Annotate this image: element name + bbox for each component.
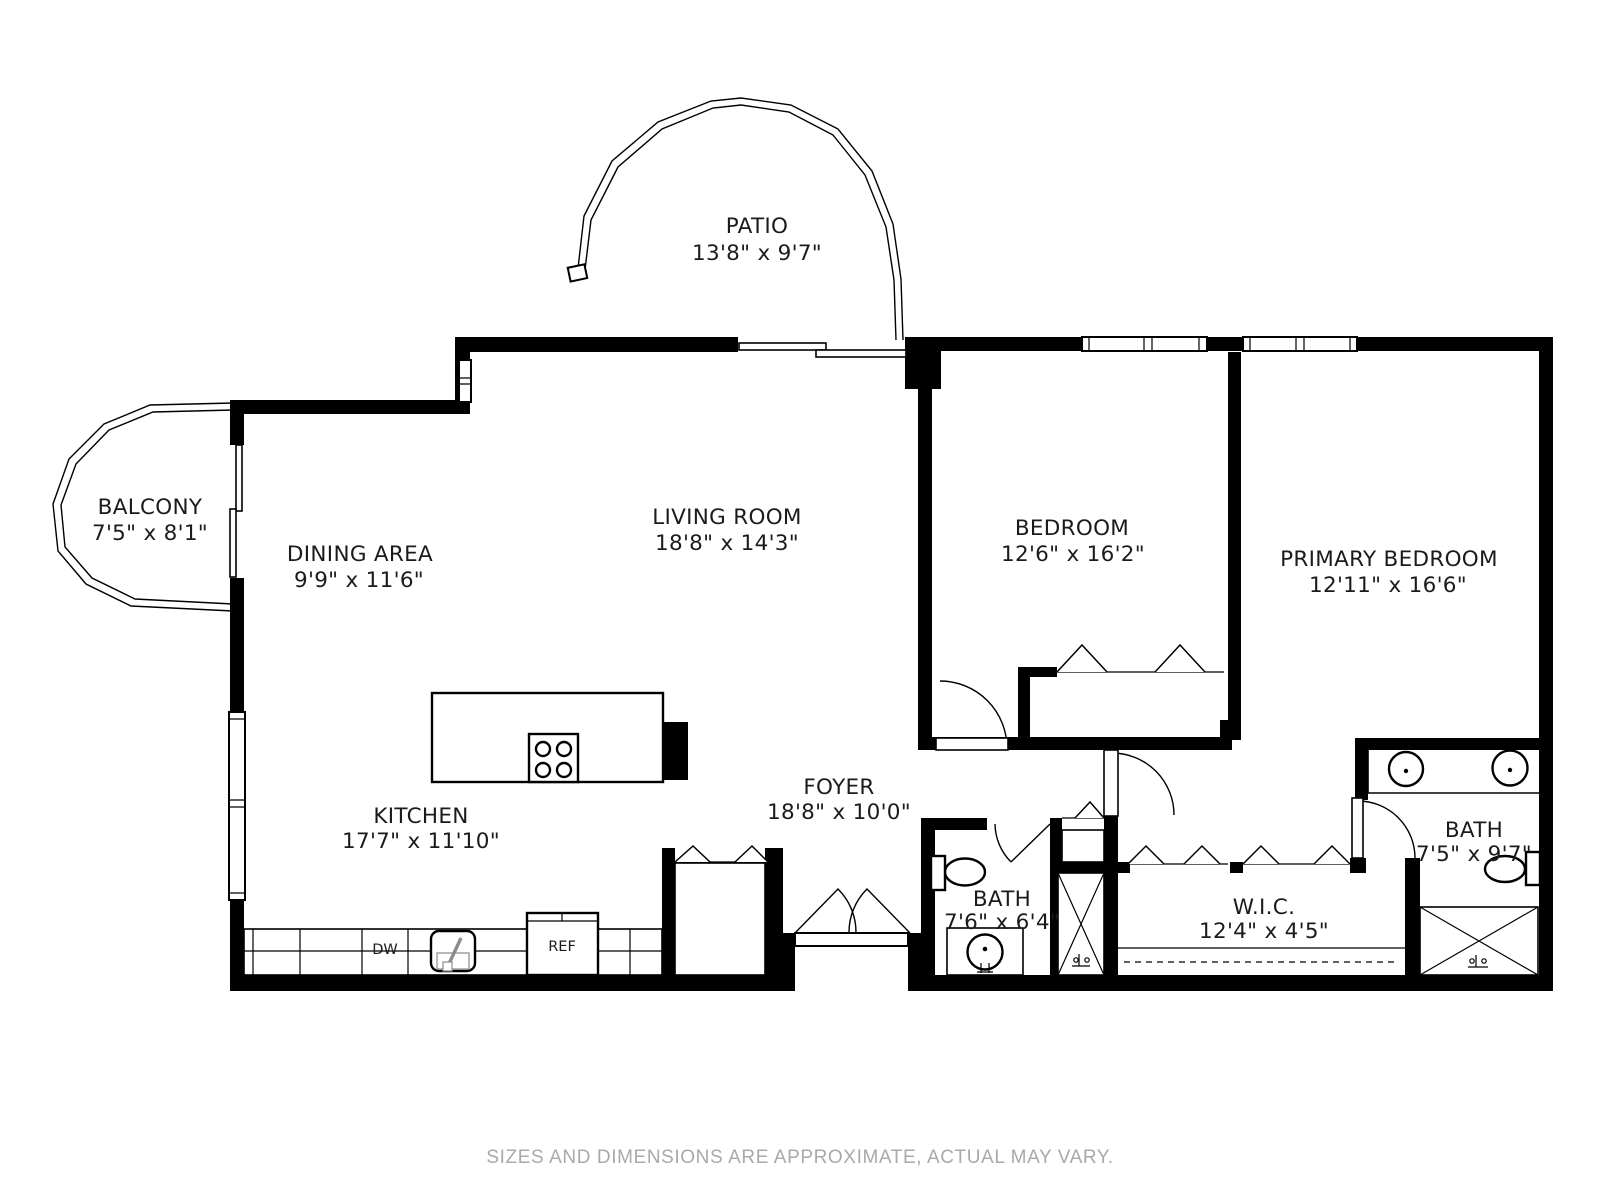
kitchen-dims: 17'7" x 11'10"	[342, 829, 500, 854]
door-swing-arc	[995, 824, 1011, 862]
entry-threshold	[795, 933, 908, 946]
slider-panel	[739, 343, 826, 350]
foyer-dims: 18'8" x 10'0"	[767, 800, 911, 825]
bifold-door	[1128, 846, 1164, 864]
refrigerator-label: REF	[548, 939, 576, 955]
bedroom-dims: 12'6" x 16'2"	[1001, 542, 1145, 567]
slider-panel	[236, 445, 242, 511]
bedroom-label: BEDROOM	[1015, 516, 1129, 541]
island-wall-block	[663, 722, 688, 780]
bath-label: BATH	[973, 887, 1031, 912]
hall-closet	[1062, 802, 1104, 862]
bath-door	[995, 824, 1050, 862]
bifold-door	[1314, 846, 1350, 864]
closet-interior	[1062, 830, 1104, 862]
balcony-dims: 7'5" x 8'1"	[92, 521, 208, 546]
entry-door-leaf-left	[795, 889, 856, 933]
burner	[557, 763, 571, 777]
dining-step-window	[459, 360, 471, 402]
bifold-door	[1243, 846, 1279, 864]
primary-bedroom-window	[1243, 337, 1357, 351]
vanity-sink	[968, 935, 1003, 970]
sink-drain	[983, 947, 988, 952]
primary-bath-label: BATH	[1445, 818, 1503, 843]
balcony-label: BALCONY	[98, 495, 203, 520]
bifold-door	[1155, 645, 1205, 672]
window-frame	[229, 712, 245, 900]
slider-panel	[816, 350, 906, 357]
patio-label: PATIO	[726, 214, 789, 239]
kitchen-label: KITCHEN	[373, 804, 468, 829]
door-swing-arc	[1358, 801, 1415, 858]
patio-sliding-door	[739, 343, 906, 357]
floor-plan-drawing: REF DW	[0, 0, 1600, 1200]
burner	[557, 742, 571, 756]
slider-panel	[230, 509, 236, 577]
living-room-dims: 18'8" x 14'3"	[655, 531, 799, 556]
primary-bedroom-label: PRIMARY BEDROOM	[1280, 547, 1498, 572]
kitchen-window	[229, 712, 245, 900]
wic-label: W.I.C.	[1233, 895, 1295, 920]
entry-door-leaf-right	[849, 889, 910, 933]
toilet-bowl	[945, 859, 985, 886]
faucet-handle	[443, 962, 452, 971]
door-leaf	[1104, 750, 1118, 816]
hall-shower	[1058, 873, 1104, 975]
bedroom-window	[1082, 337, 1207, 351]
window-frame	[459, 360, 471, 402]
toilet	[931, 856, 985, 890]
stove-outline	[529, 734, 578, 782]
dining-area-label: DINING AREA	[287, 542, 433, 567]
foyer-closet	[675, 846, 768, 975]
primary-bath-door	[1352, 798, 1415, 858]
floor-plan-page: REF DW	[0, 0, 1600, 1200]
wall-segments	[230, 337, 1553, 991]
stove	[529, 734, 578, 782]
door-leaf	[1352, 798, 1363, 858]
burner	[536, 742, 550, 756]
patio-arc-endcap	[568, 264, 588, 281]
bifold-door	[1075, 802, 1104, 818]
window-frame	[1243, 337, 1357, 351]
entry-double-door	[795, 889, 910, 946]
sink-drain	[1404, 769, 1408, 773]
primary-suite-door	[1104, 750, 1174, 816]
sink-drain	[1508, 768, 1512, 772]
dishwasher-label: DW	[372, 942, 398, 958]
bifold-door	[735, 846, 768, 862]
dining-area-dims: 9'9" x 11'6"	[294, 568, 424, 593]
foyer-label: FOYER	[803, 775, 874, 800]
kitchen-counter: REF DW	[244, 913, 662, 975]
toilet-tank	[931, 856, 945, 890]
bifold-door	[675, 846, 710, 862]
room-labels: PATIO 13'8" x 9'7" BALCONY 7'5" x 8'1" D…	[92, 214, 1532, 944]
refrigerator: REF	[527, 913, 598, 975]
primary-bedroom-dims: 12'11" x 16'6"	[1309, 573, 1467, 598]
bifold-door	[1057, 645, 1107, 672]
door-swing-arc	[1112, 753, 1174, 815]
balcony-sliding-door	[230, 445, 242, 577]
wic-rod-and-shelf	[1118, 948, 1405, 962]
primary-bath-dims: 7'5" x 9'7"	[1416, 842, 1532, 867]
kitchen-island	[432, 693, 688, 782]
door-leaf	[936, 738, 1008, 750]
walls	[230, 337, 1553, 991]
burner	[536, 763, 550, 777]
shower	[1420, 907, 1538, 975]
disclaimer-text: SIZES AND DIMENSIONS ARE APPROXIMATE, AC…	[486, 1147, 1113, 1168]
bath-dims: 7'6" x 6'4"	[944, 910, 1060, 935]
living-room-label: LIVING ROOM	[652, 505, 802, 530]
patio-dims: 13'8" x 9'7"	[692, 241, 822, 266]
bedroom-door	[936, 681, 1008, 750]
vanity	[947, 928, 1023, 975]
closet-interior	[675, 863, 765, 975]
door-leaf	[1011, 824, 1050, 862]
wic-dims: 12'4" x 4'5"	[1199, 919, 1329, 944]
bifold-door	[1184, 846, 1220, 864]
wic-bifolds	[1128, 846, 1350, 864]
bedroom-closet	[1057, 645, 1224, 672]
kitchen-sink	[431, 931, 475, 971]
